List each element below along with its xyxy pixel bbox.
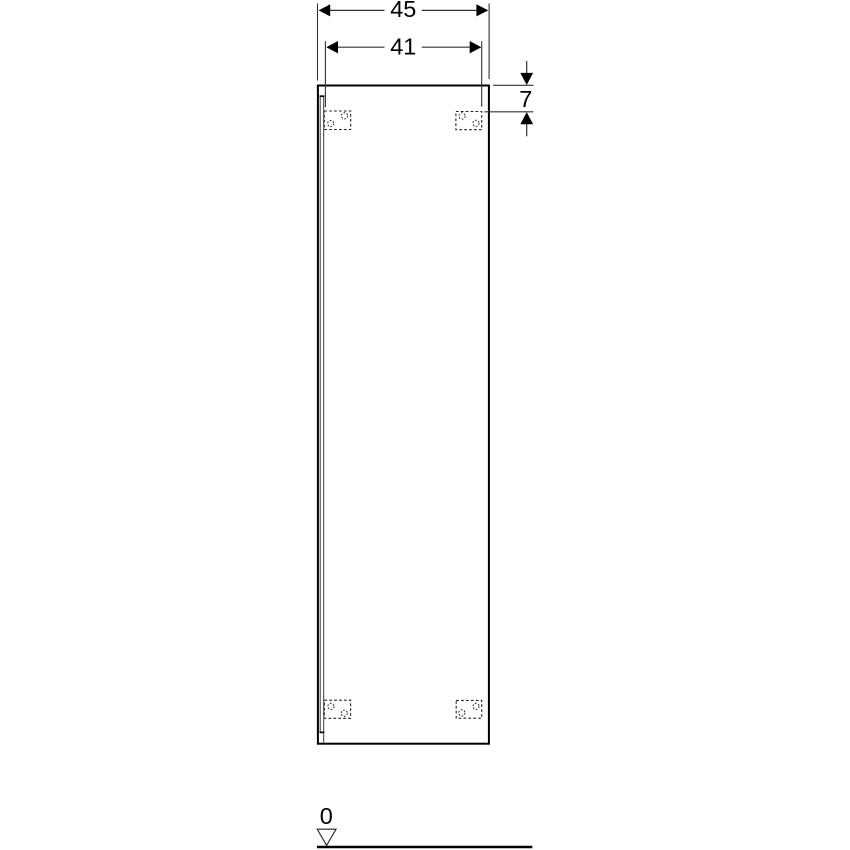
svg-text:41: 41	[390, 33, 416, 59]
svg-text:7: 7	[519, 86, 532, 112]
svg-text:45: 45	[390, 0, 416, 22]
svg-text:0: 0	[320, 803, 333, 829]
